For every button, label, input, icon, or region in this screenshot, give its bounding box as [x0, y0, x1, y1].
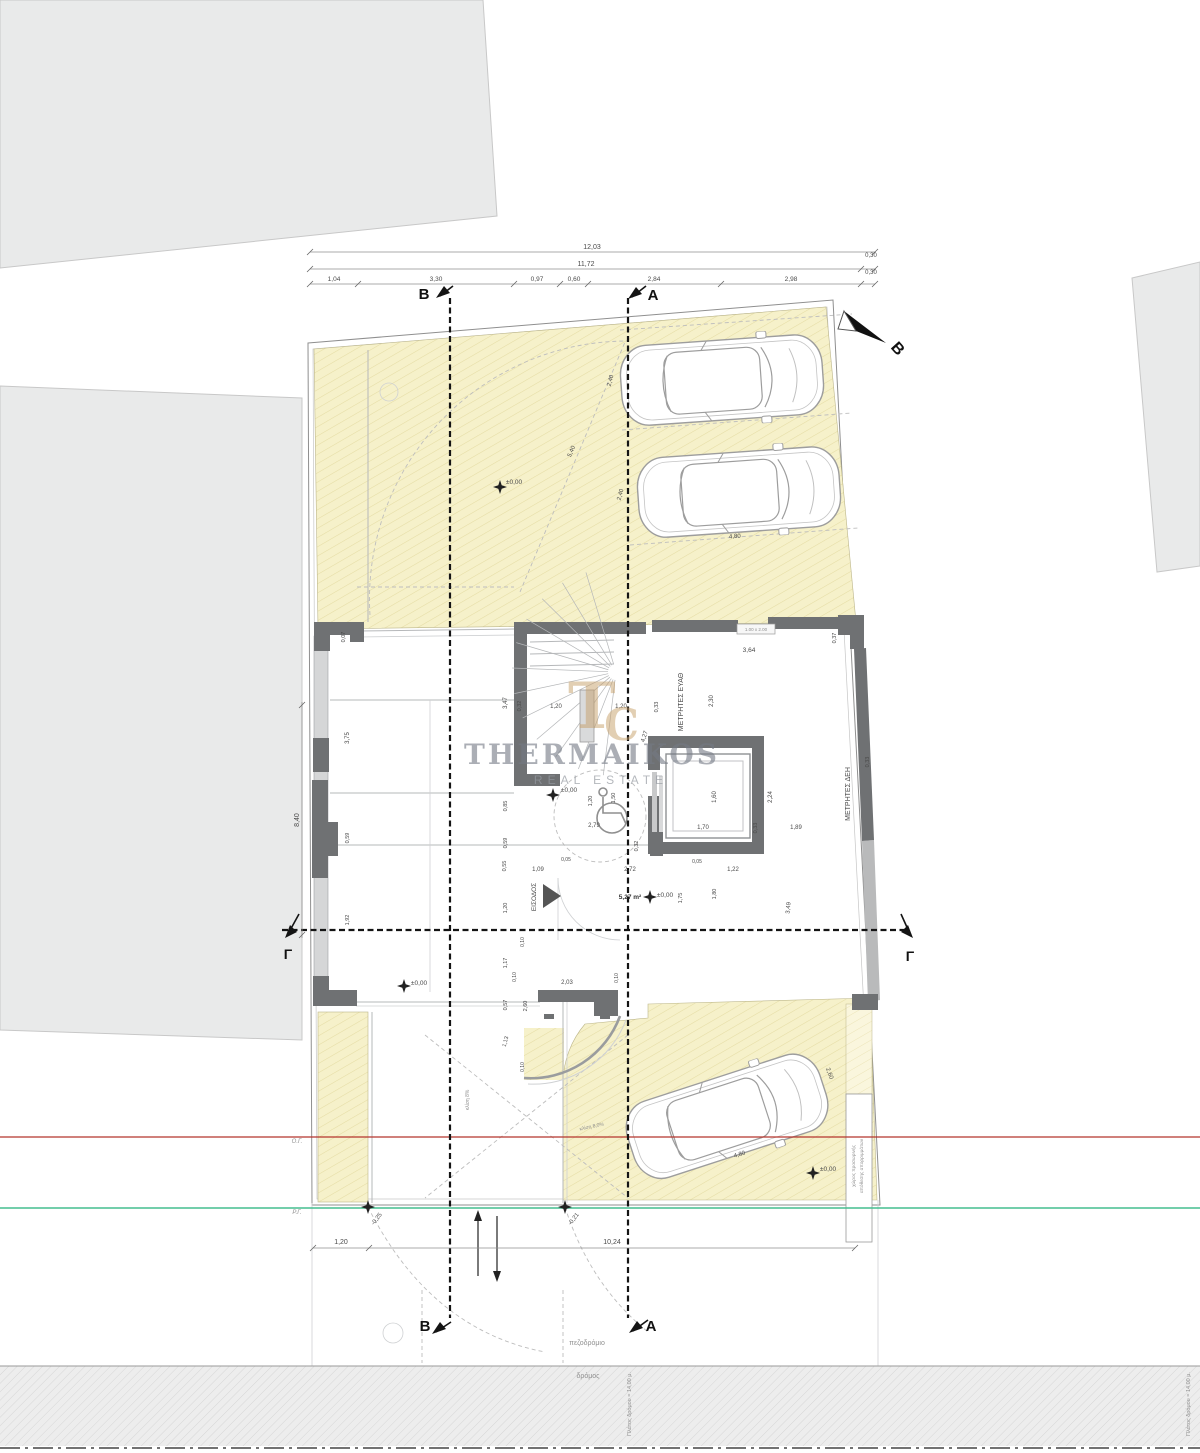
room-label-meters-deh: ΜΕΤΡΗΤΕΣ ΔΕΗ — [845, 767, 852, 821]
dim: 0,10 — [614, 973, 620, 983]
level-sidewalk: -0,21 — [568, 1212, 582, 1227]
dim: 1,17 — [503, 958, 509, 969]
dim: 0,59 — [345, 833, 351, 844]
dim: 0,59 — [503, 838, 509, 849]
dim: 1,89 — [790, 825, 802, 831]
road-label: δρόμος — [576, 1372, 600, 1380]
slope-note: κλίση 8% — [465, 1089, 471, 1110]
dim-top: 11,72 — [578, 261, 595, 268]
dim: 0,05 — [561, 857, 571, 863]
dim: 0,10 — [520, 937, 526, 947]
dim-top: 3,30 — [430, 276, 443, 283]
section-label-g-left: Γ — [284, 946, 293, 962]
dim-parking: 4,80 — [729, 534, 742, 541]
dim-elevator: 0,33 — [753, 823, 759, 834]
drive-arrows — [474, 1210, 501, 1282]
dim: 2,24 — [768, 791, 774, 803]
dim: 1,20 — [588, 796, 594, 807]
dim: 0,33 — [865, 757, 871, 768]
dim: 2,60 — [523, 1001, 529, 1012]
dim-top: 0,60 — [568, 276, 581, 283]
neighbor-building-shape — [1132, 262, 1200, 572]
level-hall: ±0,00 — [561, 787, 578, 794]
dim: 0,10 — [520, 1062, 526, 1072]
dim: 3,47 — [503, 697, 509, 709]
building-line-label: Ο.Γ. — [292, 1139, 303, 1145]
waste-area-note: χώρος προσωρινής — [850, 1144, 857, 1186]
dim: 0,10 — [512, 972, 518, 982]
brand-subtitle: REAL ESTATE — [534, 773, 668, 787]
dim-total-top: 12,03 — [583, 244, 601, 251]
dim: 2,79 — [588, 823, 600, 829]
neighbor-building-shape — [0, 386, 302, 1040]
section-label-a-top: A — [648, 287, 659, 304]
planter-left — [318, 1012, 368, 1202]
dim: 0,32 — [517, 701, 523, 712]
dim-top: 0,30 — [865, 253, 877, 259]
dim: 2,30 — [709, 695, 715, 707]
dim-top: 2,84 — [648, 276, 661, 283]
section-label-b-bottom: B — [420, 1318, 431, 1335]
waste-area-note: απόθεσης απορριμμάτων — [858, 1138, 865, 1193]
dim: 1,75 — [678, 893, 684, 904]
dim-bottom: 1,20 — [334, 1239, 348, 1246]
neighbor-building-shape — [0, 0, 497, 268]
road-width-note: Πλάτος δρόμου = 14,00 μ. — [626, 1372, 633, 1436]
dim: 0,57 — [503, 1000, 509, 1011]
section-label-a-bottom: A — [646, 1318, 657, 1335]
dim-elevator: 1,60 — [712, 791, 718, 803]
section-label-g-right: Γ — [906, 948, 915, 964]
floor-plan-page: 12,0311,720,300,301,043,300,970,602,842,… — [0, 0, 1200, 1453]
sidewalk-label: πεζοδρόμιο — [569, 1339, 605, 1347]
north-arrow-icon — [838, 311, 886, 343]
dim: 0,32 — [634, 841, 640, 852]
street-line-label: Ρ.Γ. — [292, 1210, 301, 1216]
dim: 0,55 — [502, 861, 508, 872]
dim-top: 1,04 — [328, 276, 341, 283]
floor-plan-canvas: 12,0311,720,300,301,043,300,970,602,842,… — [0, 0, 1200, 1453]
dim: 3,64 — [743, 647, 756, 654]
dim: 2,03 — [561, 980, 573, 986]
level-parking: ±0,00 — [820, 1166, 837, 1173]
dim: 0,33 — [654, 702, 660, 713]
road-strip — [0, 1366, 1200, 1446]
dim: 0,85 — [503, 801, 509, 812]
dim: 1,22 — [727, 867, 739, 873]
dim-top: 0,30 — [865, 270, 877, 276]
section-label-b-top: B — [419, 286, 430, 303]
area-label: 5,27 m² — [619, 894, 642, 901]
dim: 3,49 — [786, 901, 793, 914]
level-walkway: ±0,00 — [657, 892, 674, 899]
dim: 1,80 — [712, 889, 718, 900]
dim: 1,09 — [532, 867, 544, 873]
dim: 0,05 — [692, 859, 702, 865]
brand-name: THERMAIKOS — [464, 738, 720, 771]
dim: 1,20 — [550, 704, 562, 710]
room-label-meters-eyath: ΜΕΤΡΗΤΕΣ ΕΥΑΘ — [678, 672, 685, 731]
planter-center — [524, 1028, 564, 1080]
waste-area-box — [846, 1094, 872, 1242]
planter-right-strip — [846, 1004, 872, 1094]
dim-left-total: 8,40 — [294, 813, 301, 827]
dim-top: 0,97 — [531, 276, 544, 283]
dim: 3,75 — [345, 732, 351, 744]
dim-top: 2,98 — [785, 276, 798, 283]
dim: 2,72 — [624, 867, 636, 873]
window-size-label: 1.00 x 2.00 — [745, 627, 768, 632]
dim-elevator: 1,70 — [697, 825, 709, 831]
road-width-note: Πλάτος δρόμου = 14,00 μ. — [1185, 1372, 1192, 1436]
level-garden: ±0,00 — [506, 479, 523, 486]
level-sidewalk: -0,25 — [371, 1212, 385, 1227]
room-label-entrance: ΕΙΣΟΔΟΣ — [531, 883, 538, 911]
dim: 1,50 — [611, 793, 617, 804]
dim-bottom: 10,24 — [603, 1239, 621, 1246]
dim: 0,37 — [832, 633, 838, 644]
north-label: Β — [887, 339, 907, 359]
dim: 0,07 — [341, 632, 347, 643]
level-pilotis: ±0,00 — [411, 980, 428, 987]
dim: 1,20 — [503, 903, 509, 914]
dim: 1,92 — [345, 915, 351, 926]
